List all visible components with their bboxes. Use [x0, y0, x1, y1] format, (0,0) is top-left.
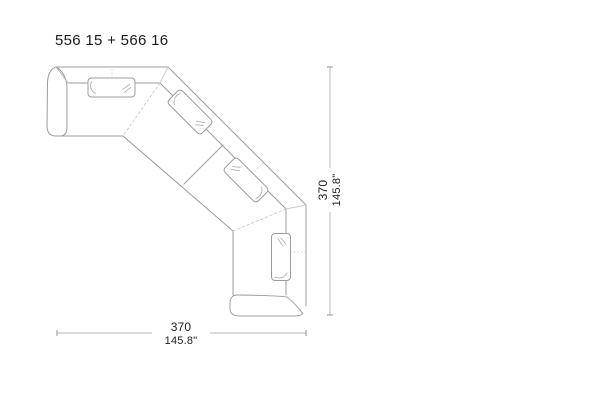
height-dimension-value-cm: 370 [316, 180, 330, 201]
product-spec-page: 556 15 + 566 16 [0, 0, 600, 400]
width-dimension-value-cm: 370 [171, 320, 192, 334]
sofa-plan-drawing: 370 145.8" 370 145.8" [0, 0, 600, 400]
back-cushion-1 [88, 78, 135, 97]
armrest-bottom [230, 295, 303, 316]
armrest-left [47, 67, 68, 136]
back-cushion-4 [272, 234, 291, 281]
module-seam-lines [123, 67, 306, 231]
width-dimension: 370 145.8" [57, 320, 306, 347]
back-cushion-2 [167, 89, 214, 136]
height-dimension: 370 145.8" [316, 67, 343, 315]
sofa-left-module [57, 67, 168, 136]
sofa-corner-module [123, 67, 306, 231]
width-dimension-value-inches: 145.8" [165, 335, 198, 347]
sofa-right-module [233, 205, 306, 306]
height-dimension-value-inches: 145.8" [331, 174, 343, 207]
